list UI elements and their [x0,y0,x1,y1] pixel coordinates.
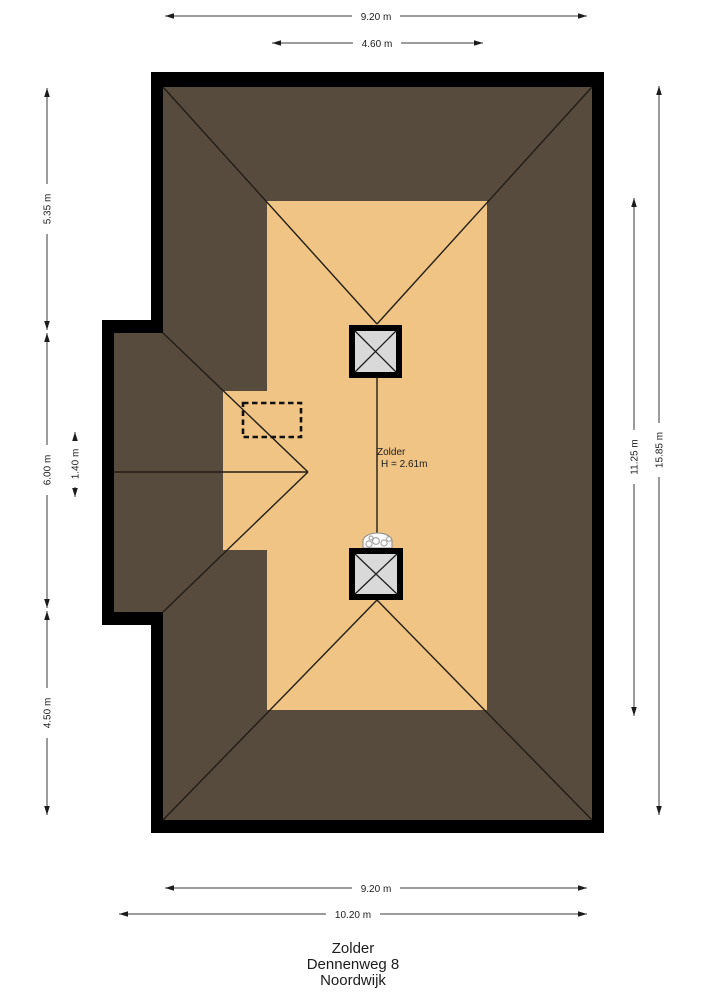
attic-floor-dormer-area [223,391,267,550]
floorplan-page: Zolder H = 2.61m 9.20 m 4.60 m 5.35 [0,0,707,1000]
dim-right-1: 11.25 m [628,198,641,716]
floorplan-canvas: Zolder H = 2.61m 9.20 m 4.60 m 5.35 [0,0,707,1000]
dim-right-2: 15.85 m [653,86,666,815]
title-room: Zolder [332,940,375,957]
dim-left-1: 5.35 m [41,88,54,330]
dim-label: 11.25 m [630,439,641,474]
chimney-lower [349,548,403,600]
title-street: Dennenweg 8 [307,956,400,973]
dim-label: 4.50 m [43,698,54,729]
dim-left-3: 1.40 m [69,432,82,497]
title-block: Zolder Dennenweg 8 Noordwijk [307,940,400,989]
dim-top-2: 4.60 m [272,36,483,50]
dim-label: 10.20 m [335,910,371,921]
dim-left-4: 4.50 m [41,611,54,815]
dim-bottom-2: 10.20 m [119,907,587,921]
roof-vent [363,533,392,548]
dim-top-1: 9.20 m [165,9,587,23]
room-name-label: Zolder [377,447,406,458]
dim-label: 5.35 m [43,194,54,225]
dim-label: 6.00 m [43,455,54,486]
dim-label: 15.85 m [655,432,666,468]
dim-label: 9.20 m [361,884,392,895]
dim-label: 4.60 m [362,39,393,50]
room-height-label: H = 2.61m [381,459,427,470]
dim-bottom-1: 9.20 m [165,881,587,895]
dim-left-2: 6.00 m [41,333,54,608]
dim-label: 1.40 m [71,449,82,480]
dim-label: 9.20 m [361,12,392,23]
title-city: Noordwijk [320,972,386,989]
chimney-upper [349,325,402,378]
